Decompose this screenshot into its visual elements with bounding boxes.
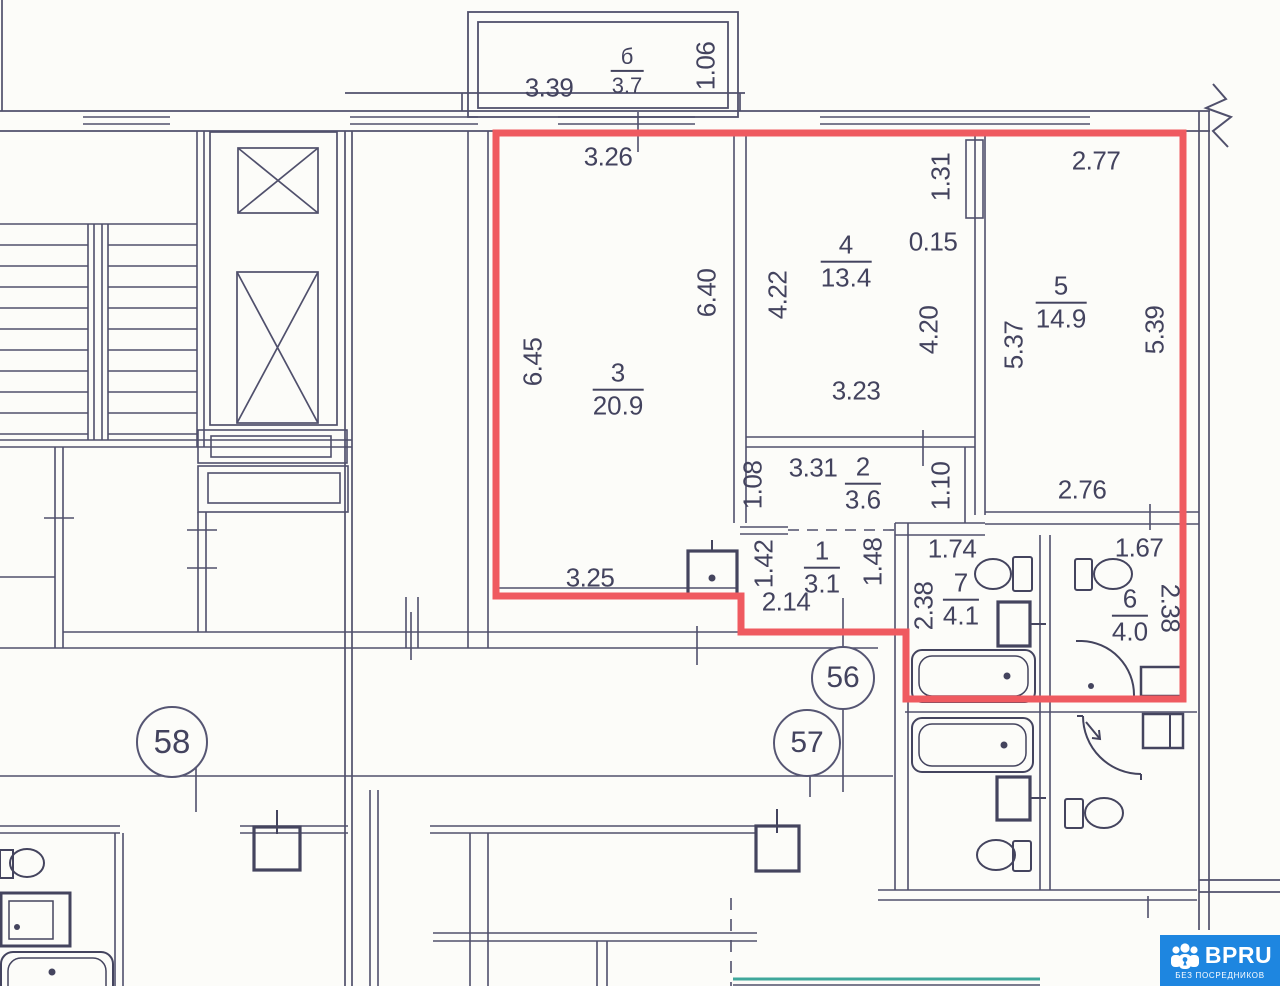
dim-room4-right: 4.20 [914, 306, 945, 355]
balcony-label: б 3.7 [611, 45, 644, 97]
dim-room5-top: 2.77 [1072, 146, 1121, 177]
unit-circle-56: 56 [811, 646, 875, 710]
room-area: 20.9 [593, 391, 644, 420]
dim-room2-right: 1.10 [926, 462, 957, 511]
dim-room5-right: 5.39 [1140, 306, 1171, 355]
dim-room1-right: 1.48 [858, 538, 889, 587]
room-number: 3 [593, 360, 644, 391]
dim-room5-left: 5.37 [999, 321, 1030, 370]
sink-icon [998, 602, 1046, 646]
toilet-icon [977, 840, 1031, 871]
elevator-1-icon [238, 148, 318, 213]
dim-balcony-width: 3.39 [525, 73, 574, 104]
dim-room3-left: 6.45 [518, 338, 549, 387]
room-number: 2 [845, 454, 881, 485]
staircase [0, 131, 352, 447]
sink-icon [254, 810, 300, 870]
room-4-label: 4 13.4 [821, 232, 872, 293]
sink-icon [1, 893, 70, 946]
room-area: 14.9 [1036, 304, 1087, 333]
dim-room3-right: 6.40 [692, 269, 723, 318]
room-number: 6 [1112, 586, 1148, 617]
dim-room4-bottom: 3.23 [832, 376, 881, 407]
dim-room2-left: 1.08 [738, 461, 769, 510]
unit-circle-57: 57 [773, 709, 841, 777]
washer-icon [1141, 667, 1181, 696]
room-number: 4 [821, 232, 872, 263]
room-area: 13.4 [821, 263, 872, 292]
logo-brand: BPRU [1205, 942, 1272, 969]
elevator-2-icon [237, 272, 318, 423]
room-1-label: 1 3.1 [804, 538, 840, 599]
room-area: 4.0 [1112, 617, 1148, 646]
dim-room7-left: 2.38 [909, 582, 940, 631]
dim-room4-niche: 1.31 [926, 153, 957, 202]
elevator-shaft [210, 131, 352, 986]
room-3-label: 3 20.9 [593, 360, 644, 421]
dim-room3-bottom: 3.25 [566, 563, 615, 594]
room-number: б [611, 45, 644, 72]
service-shafts [187, 430, 348, 632]
dim-room3-top: 3.26 [584, 142, 633, 173]
bpru-watermark: BPRU БЕЗ ПОСРЕДНИКОВ [1160, 935, 1280, 986]
corner-shower-icon [1077, 716, 1141, 780]
dim-balcony-depth: 1.06 [691, 42, 722, 91]
dim-room6-top: 1.67 [1115, 533, 1164, 564]
dim-room7-top: 1.74 [928, 534, 977, 565]
room-area: 4.1 [943, 601, 979, 630]
room-7-label: 7 4.1 [943, 570, 979, 631]
toilet-icon [1065, 798, 1123, 828]
dim-room4-wall: 0.15 [909, 227, 958, 258]
room-number: 7 [943, 570, 979, 601]
dim-room6-right: 2.38 [1155, 584, 1186, 633]
sink-icon [1143, 714, 1183, 748]
room-6-label: 6 4.0 [1112, 586, 1148, 647]
toilet-icon [0, 849, 44, 878]
logo-tagline: БЕЗ ПОСРЕДНИКОВ [1175, 971, 1264, 980]
room-number: 1 [804, 538, 840, 569]
bathtub-icon [1, 952, 113, 986]
sink-icon [756, 809, 799, 871]
dim-room2-top: 3.31 [789, 453, 838, 484]
windows [83, 117, 1090, 124]
dim-room5-bottom: 2.76 [1058, 475, 1107, 506]
room-number: 5 [1036, 273, 1087, 304]
room-area: 3.6 [845, 485, 881, 514]
room-2-label: 2 3.6 [845, 454, 881, 515]
corner-shower-icon [1076, 641, 1134, 701]
room-area: 3.1 [804, 569, 840, 598]
apartment-inner-walls [468, 112, 1199, 702]
unit-circle-58: 58 [136, 706, 208, 778]
floor-plan-scan: 3.39 1.06 3.26 6.45 6.40 3.25 4.22 1.31 … [0, 0, 1280, 986]
logo-row: BPRU [1168, 942, 1272, 970]
bathtub-icon [912, 650, 1035, 702]
exterior-walls [0, 0, 1280, 930]
dim-room1-left: 1.42 [749, 540, 780, 589]
sink-icon [997, 777, 1046, 820]
room-5-label: 5 14.9 [1036, 273, 1087, 334]
toilet-icon [975, 557, 1032, 591]
dim-room4-left: 4.22 [763, 271, 794, 320]
room-area: 3.7 [611, 72, 644, 97]
people-icon [1168, 942, 1202, 970]
bathtub-icon [912, 718, 1033, 772]
